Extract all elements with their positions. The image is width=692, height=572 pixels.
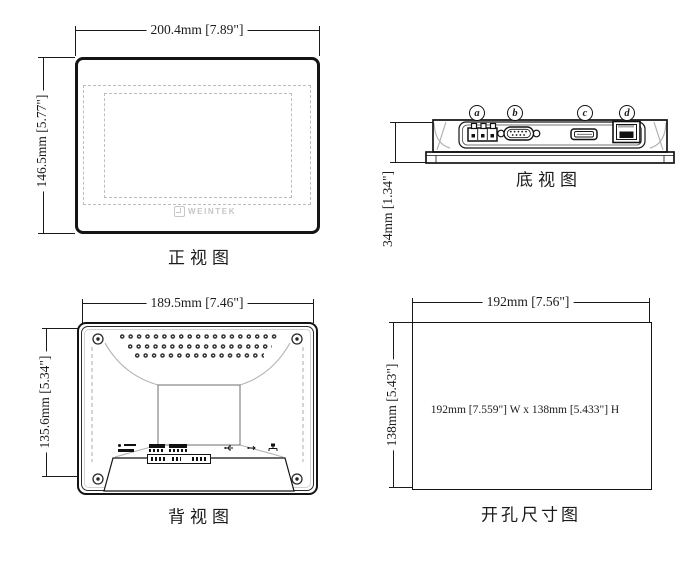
dim-line	[395, 122, 396, 163]
dimension-drawing: 200.4mm [7.89"] 146.5mm [5.77"] WEINTEK …	[0, 0, 692, 572]
port-label-a: a	[469, 105, 485, 121]
ethernet-icon	[268, 443, 278, 452]
mounting-recess-rect	[158, 385, 240, 445]
connector-pins	[172, 457, 181, 461]
serial-db9-port	[498, 127, 540, 140]
cutout-height-dim: 138mm [5.43"]	[384, 360, 400, 451]
front-view-label: 正视图	[168, 244, 234, 269]
front-height-dim: 146.5mm [5.77"]	[34, 91, 50, 192]
extension-line	[389, 322, 413, 323]
usb-port	[571, 129, 597, 140]
extension-line	[389, 487, 413, 488]
extension-line	[42, 328, 78, 329]
extension-line	[649, 298, 650, 322]
extension-line	[75, 26, 76, 56]
port-label-c: c	[577, 105, 593, 121]
ethernet-port	[613, 122, 640, 143]
expansion-connector	[147, 454, 211, 464]
front-width-dim: 200.4mm [7.89"]	[147, 22, 248, 38]
terminal-label-block	[169, 444, 187, 448]
serial-icon	[247, 444, 257, 452]
back-view-label: 背视图	[168, 503, 234, 528]
cutout-size-text: 192mm [7.559"] W x 138mm [5.433"] H	[431, 404, 619, 416]
power-mark-label	[118, 449, 134, 452]
connector-pins	[192, 457, 206, 461]
extension-line	[319, 26, 320, 56]
terminal-pins-mark	[149, 449, 165, 452]
extension-line	[390, 162, 427, 163]
logo-text: WEINTEK	[188, 207, 236, 216]
extension-line	[38, 57, 75, 58]
extension-line	[42, 476, 78, 477]
connector-pins	[151, 457, 165, 461]
power-terminal	[468, 124, 497, 142]
front-panel-bezel: WEINTEK	[75, 57, 320, 234]
extension-line	[390, 122, 433, 123]
bottom-view-label: 底视图	[516, 166, 582, 191]
back-width-dim: 189.5mm [7.46"]	[147, 295, 248, 311]
cutout-view-label: 开孔尺寸图	[481, 501, 581, 526]
bottom-view-device	[420, 114, 682, 172]
power-mark-line	[124, 444, 136, 446]
logo-icon	[174, 206, 185, 217]
back-height-dim: 135.6mm [5.34"]	[37, 352, 53, 453]
port-label-d: d	[619, 105, 635, 121]
extension-line	[82, 299, 83, 323]
vent-holes-row2	[126, 342, 272, 351]
vent-holes-row3	[133, 351, 264, 360]
terminal-label-block	[149, 444, 165, 448]
extension-line	[412, 298, 413, 322]
bottom-height-dim: 34mm [1.34"]	[380, 167, 396, 251]
display-area-dashed	[104, 93, 292, 198]
usb-icon	[224, 444, 234, 452]
extension-line	[38, 233, 75, 234]
vent-holes-row1	[118, 332, 279, 341]
terminal-pins-mark	[169, 449, 187, 452]
power-mark-icon	[118, 444, 121, 447]
brand-logo: WEINTEK	[174, 206, 236, 217]
cutout-width-dim: 192mm [7.56"]	[483, 294, 574, 310]
extension-line	[313, 299, 314, 323]
port-label-b: b	[507, 105, 523, 121]
